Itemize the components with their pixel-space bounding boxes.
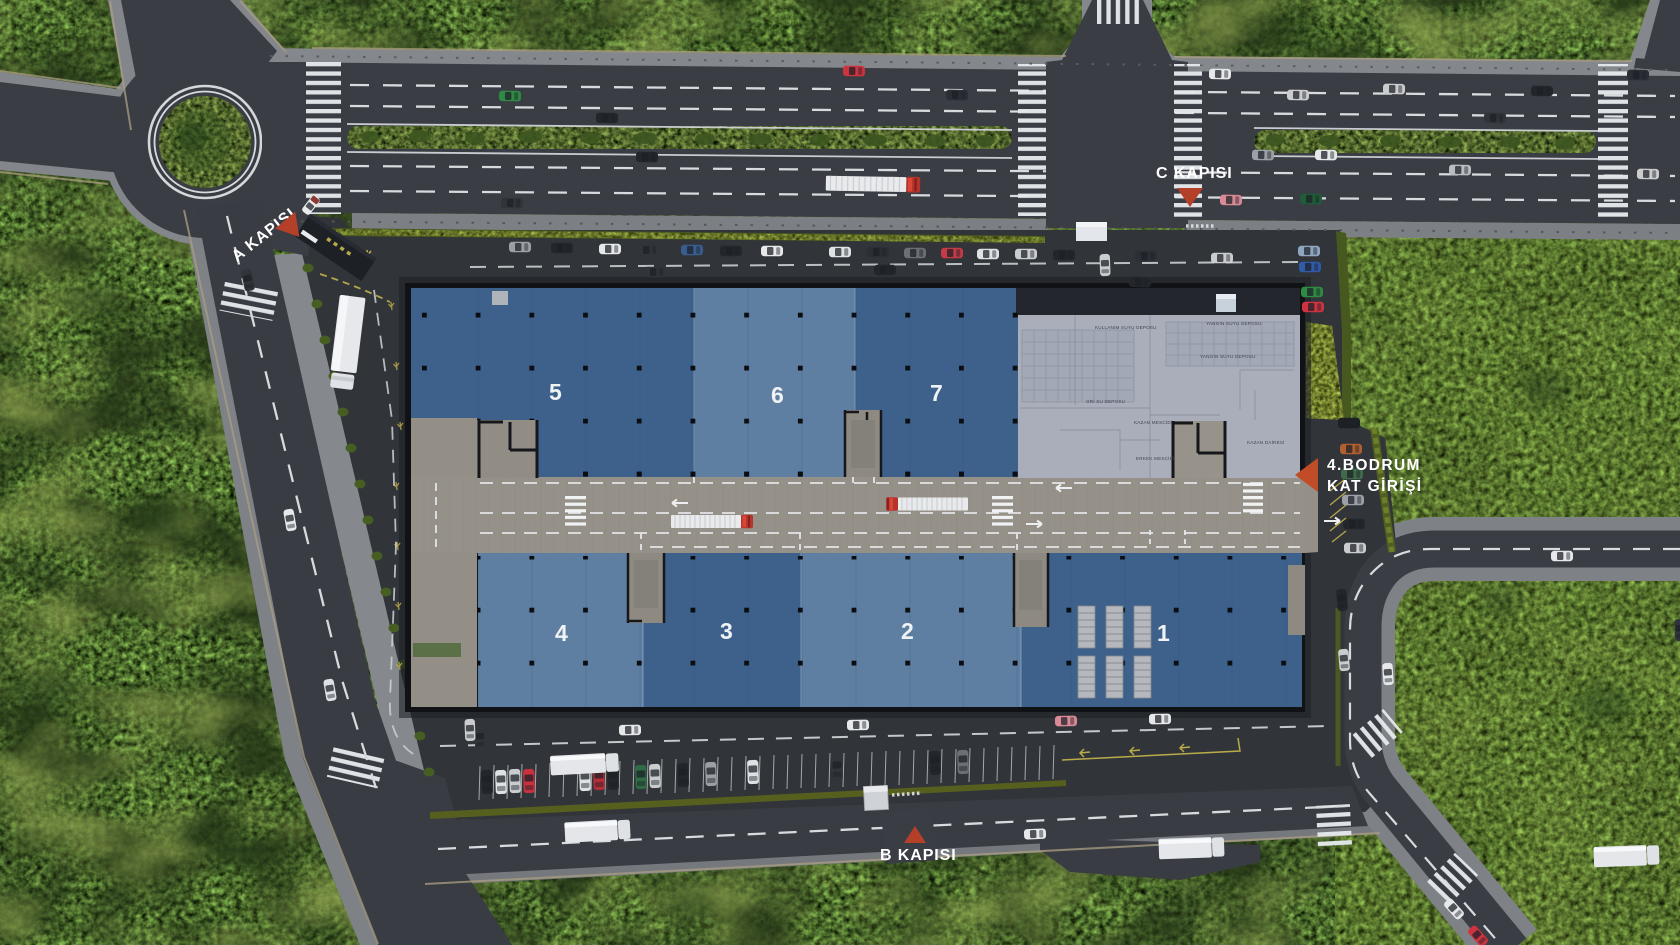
svg-text:YANGIN SUYU DEPOSU: YANGIN SUYU DEPOSU [1206, 321, 1262, 326]
svg-text:C KAPISI: C KAPISI [1156, 165, 1233, 182]
svg-text:7: 7 [930, 380, 944, 406]
svg-text:2: 2 [901, 618, 915, 644]
svg-text:4.BODRUM: 4.BODRUM [1327, 457, 1421, 474]
svg-text:ERKEK MESCİDİ: ERKEK MESCİDİ [1136, 455, 1175, 461]
svg-text:KAT GİRİŞİ: KAT GİRİŞİ [1327, 478, 1423, 495]
svg-text:3: 3 [720, 618, 734, 644]
svg-text:YANGIN SUYU DEPOSU: YANGIN SUYU DEPOSU [1200, 354, 1256, 359]
svg-text:KULLANIM SUYU DEPOSU: KULLANIM SUYU DEPOSU [1095, 325, 1157, 330]
svg-text:KAZAN MESCİDİ: KAZAN MESCİDİ [1134, 419, 1172, 425]
svg-text:B KAPISI: B KAPISI [880, 847, 957, 864]
svg-text:1: 1 [1157, 620, 1171, 646]
svg-text:6: 6 [771, 382, 785, 408]
svg-text:4: 4 [555, 620, 569, 646]
svg-text:KAZAN DAİRESİ: KAZAN DAİRESİ [1247, 439, 1285, 445]
svg-text:GRİ SU DEPOSU: GRİ SU DEPOSU [1086, 398, 1125, 404]
svg-text:5: 5 [549, 379, 563, 405]
